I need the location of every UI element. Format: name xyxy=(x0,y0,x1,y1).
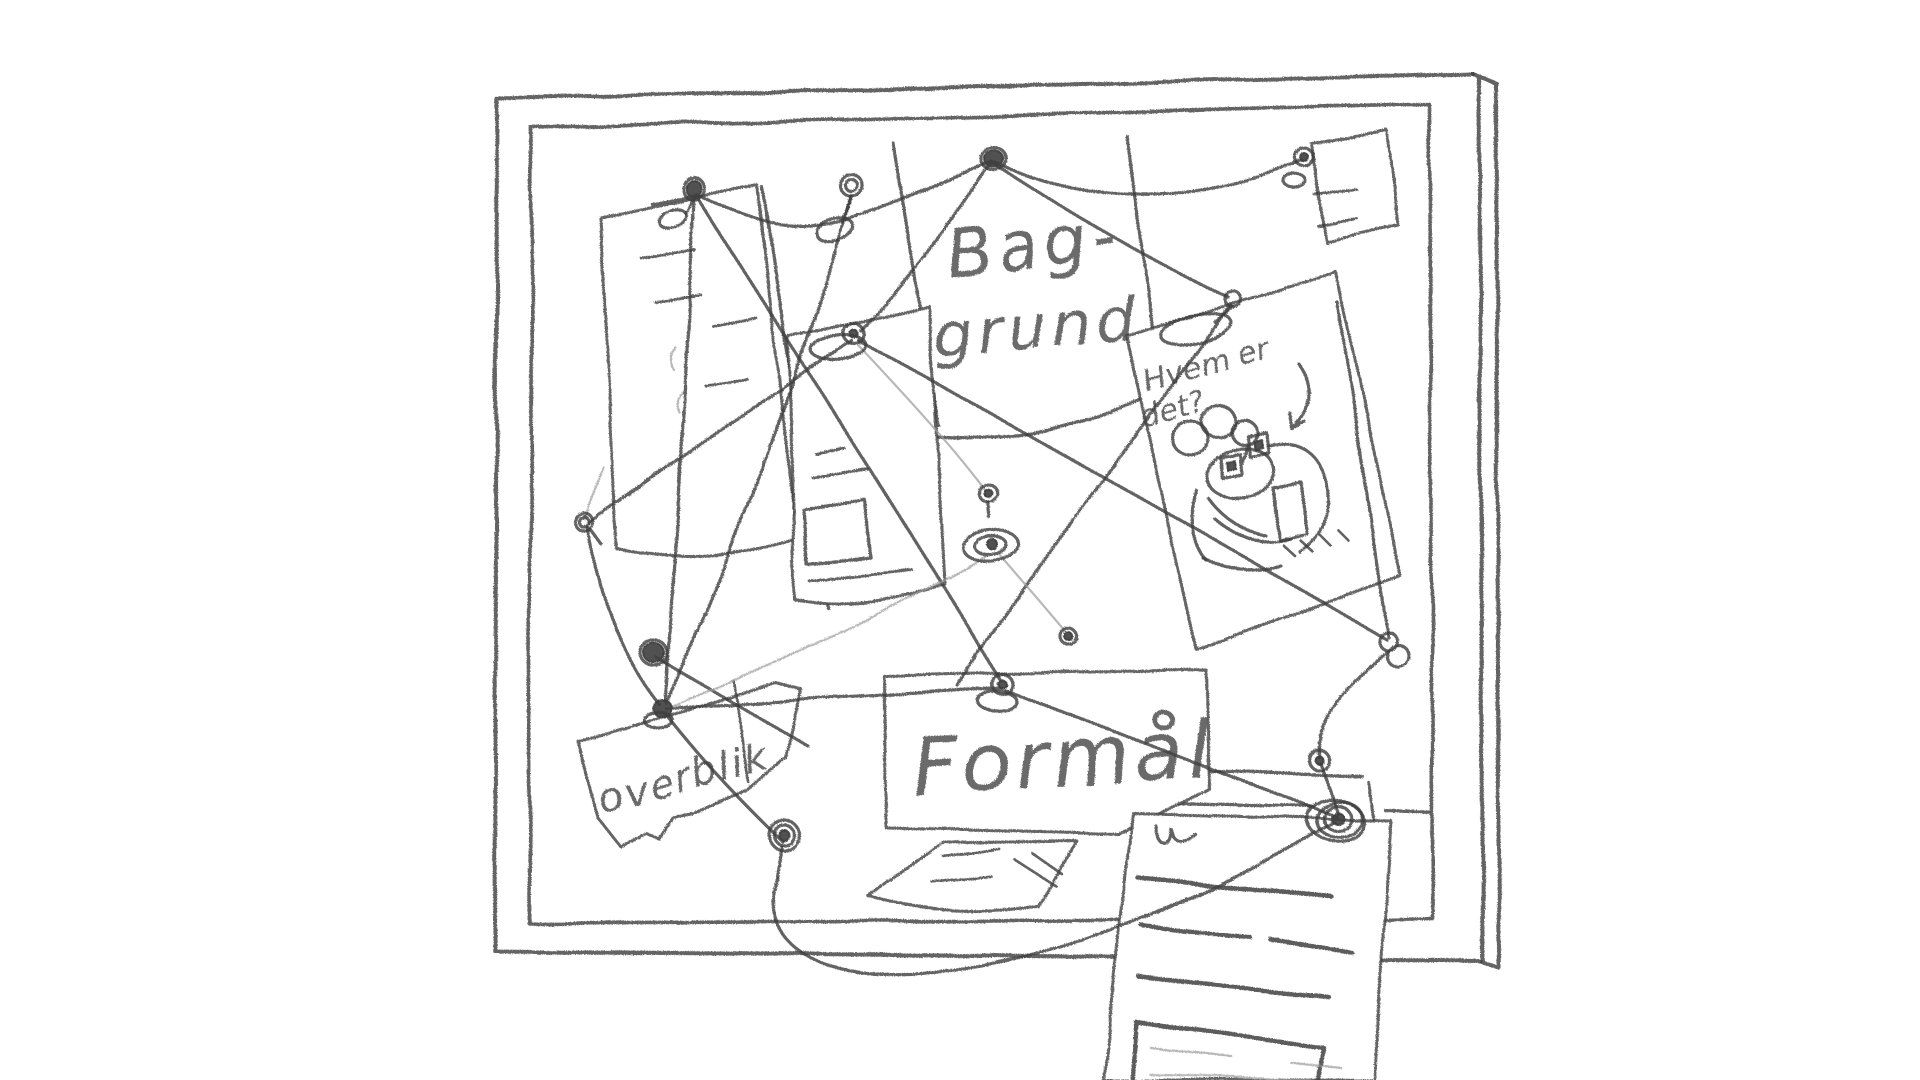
baggrund-label-line2: grund xyxy=(930,282,1143,373)
pin xyxy=(962,529,1020,564)
pin xyxy=(1285,149,1314,189)
paper-outline xyxy=(601,185,797,556)
photo-outline xyxy=(1127,272,1401,649)
sketch-canvas: Bag- grund Hvem er det? xyxy=(0,0,1920,1080)
pin xyxy=(981,146,1005,170)
string-looppin-down xyxy=(1319,650,1386,813)
portrait-photo: Hvem er det? xyxy=(1127,272,1401,649)
document-outline xyxy=(1103,813,1390,1080)
hanging-document xyxy=(1103,813,1390,1080)
pin xyxy=(641,640,667,666)
fold-outline xyxy=(869,841,1077,911)
pin xyxy=(979,484,997,518)
pinboard-sketch: Bag- grund Hvem er det? xyxy=(0,0,1920,1080)
pin xyxy=(1061,629,1077,645)
string-sag-topright xyxy=(993,161,1303,195)
pin xyxy=(814,174,862,246)
baggrund-label-line1: Bag- xyxy=(943,196,1127,294)
pin xyxy=(768,819,798,876)
folded-corner-paper xyxy=(869,841,1077,911)
frame-side-depth xyxy=(1473,74,1499,968)
top-right-note xyxy=(1312,130,1399,243)
